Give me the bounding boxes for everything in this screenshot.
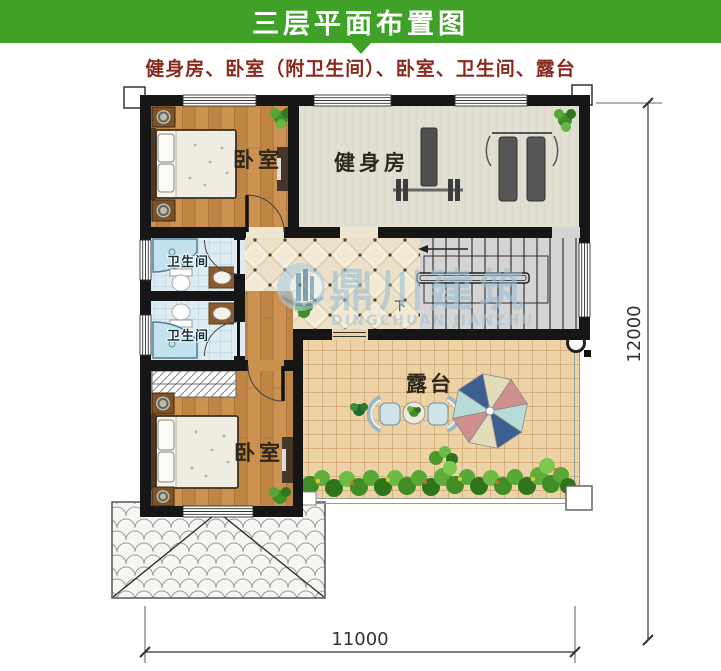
gym-label: 健身房	[334, 151, 409, 175]
title-pointer	[351, 43, 371, 54]
bedroom-bottom-label: 卧室	[234, 441, 284, 465]
pillow	[158, 420, 174, 450]
window	[140, 240, 151, 280]
treadmill	[527, 137, 545, 201]
bedroom-top-label: 卧室	[233, 148, 283, 172]
window	[140, 315, 151, 355]
gym-bench	[421, 128, 437, 186]
window	[455, 95, 527, 106]
dimension-right	[596, 98, 662, 645]
floor-plan-page: 卧室 健身房 卫生间 卫生间 卧室 露台 下 11000 12000	[0, 0, 721, 671]
pillow	[158, 452, 174, 482]
watermark-name-cn: 鼎川建筑	[329, 264, 529, 317]
window	[183, 95, 256, 106]
toilet	[172, 304, 190, 320]
bathroom-bottom-label: 卫生间	[167, 328, 209, 344]
subtitle: 健身房、卧室（附卫生间）、卧室、卫生间、露台	[0, 54, 721, 81]
page-title: 三层平面布置图	[252, 2, 469, 41]
pillow	[158, 164, 174, 192]
watermark-name-en: DINGCHUAN JIANZHU	[331, 313, 535, 329]
toilet	[172, 275, 190, 291]
treadmill	[499, 137, 517, 201]
title-bar: 三层平面布置图	[0, 0, 721, 43]
pillow	[158, 134, 174, 162]
window	[183, 506, 253, 517]
height-dimension: 12000	[624, 305, 645, 362]
bathroom-top-label: 卫生间	[167, 254, 209, 270]
window	[314, 95, 391, 106]
window	[579, 243, 590, 317]
width-dimension: 11000	[331, 629, 388, 650]
floor-plan-svg: 卧室 健身房 卫生间 卫生间 卧室 露台 下 11000 12000	[0, 0, 721, 671]
terrace-label: 露台	[406, 372, 454, 396]
